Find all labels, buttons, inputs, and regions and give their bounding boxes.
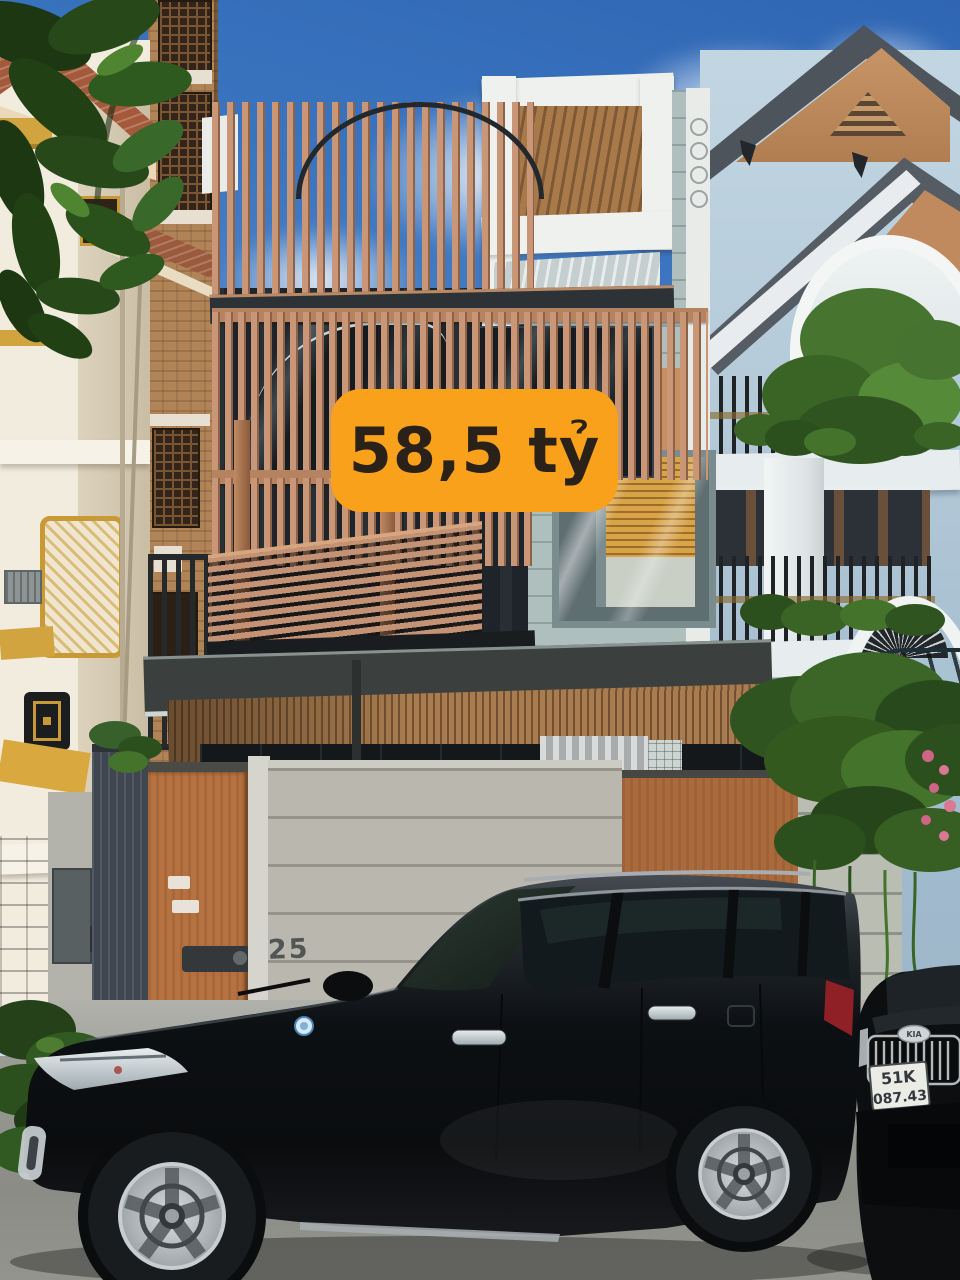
- parked-car: KIA 51K 087.43: [854, 965, 960, 1280]
- wiper: [238, 980, 310, 994]
- rear-wheel: [666, 1096, 822, 1252]
- door-handle: [452, 1030, 506, 1045]
- license-plate: 51K 087.43: [869, 1062, 930, 1111]
- balcony-plants: [734, 414, 960, 636]
- body-gloss: [440, 1100, 680, 1180]
- headlight-red-dot: [114, 1066, 122, 1074]
- street-photo-scene: 25: [0, 0, 960, 1280]
- price-badge-text: 58,5 tỷ: [349, 414, 601, 487]
- overhanging-foliage: [0, 0, 194, 368]
- sticker-center: [300, 1022, 308, 1030]
- door-handle: [648, 1006, 696, 1020]
- gate-sprig: [89, 721, 162, 773]
- vegetation-and-cars-layer: KIA 51K 087.43: [0, 0, 960, 1280]
- price-badge: 58,5 tỷ: [331, 389, 618, 512]
- suv: [17, 872, 861, 1280]
- side-mirror: [323, 971, 373, 1001]
- bumper-intake: [888, 1124, 960, 1168]
- kia-badge-text: KIA: [906, 1030, 922, 1039]
- plate-line1: 51K: [880, 1067, 917, 1089]
